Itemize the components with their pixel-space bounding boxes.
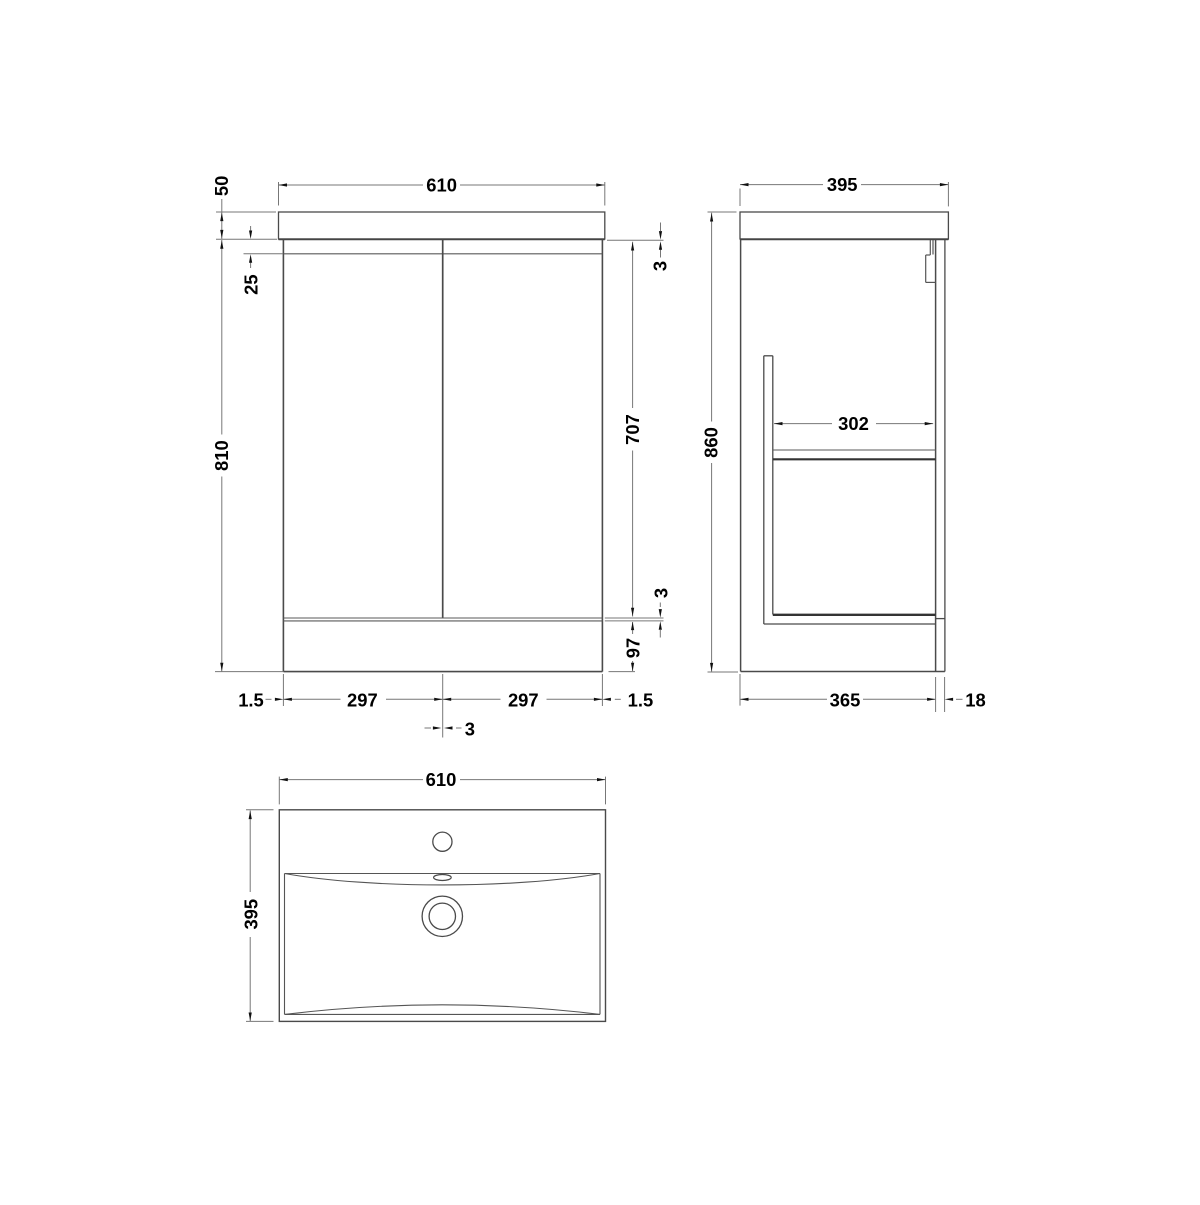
svg-text:860: 860 <box>701 427 722 458</box>
svg-text:610: 610 <box>426 175 457 196</box>
svg-text:395: 395 <box>240 899 261 930</box>
svg-text:50: 50 <box>211 176 232 196</box>
svg-text:97: 97 <box>623 638 644 658</box>
svg-text:365: 365 <box>830 689 861 710</box>
svg-text:18: 18 <box>965 689 985 710</box>
svg-text:395: 395 <box>827 174 858 195</box>
svg-text:25: 25 <box>240 274 261 294</box>
svg-text:302: 302 <box>838 413 869 434</box>
svg-text:3: 3 <box>650 261 671 271</box>
svg-text:707: 707 <box>622 414 643 445</box>
svg-text:1.5: 1.5 <box>628 690 654 711</box>
svg-text:1.5: 1.5 <box>238 690 264 711</box>
svg-text:610: 610 <box>426 769 457 790</box>
svg-text:810: 810 <box>211 440 232 471</box>
svg-text:297: 297 <box>508 690 539 711</box>
svg-text:3: 3 <box>465 718 475 739</box>
svg-text:297: 297 <box>347 690 378 711</box>
svg-text:3: 3 <box>651 588 672 598</box>
